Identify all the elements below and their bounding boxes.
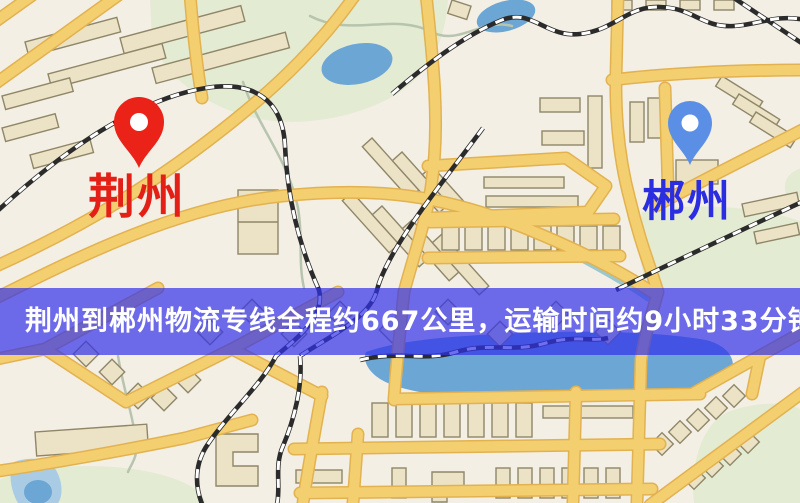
route-info-banner: 荆州到郴州物流专线全程约667公里，运输时间约9小时33分钟.: [0, 288, 800, 355]
destination-city-label: 郴州: [587, 181, 787, 224]
origin-pin-icon[interactable]: [111, 96, 167, 170]
map-view[interactable]: 荆州 郴州 荆州到郴州物流专线全程约667公里，运输时间约9小时33分钟.: [0, 0, 800, 503]
map-canvas: [0, 0, 800, 503]
route-info-text: 荆州到郴州物流专线全程约667公里，运输时间约9小时33分钟.: [25, 288, 800, 355]
destination-pin-icon[interactable]: [665, 99, 715, 167]
origin-city-label: 荆州: [37, 174, 237, 221]
